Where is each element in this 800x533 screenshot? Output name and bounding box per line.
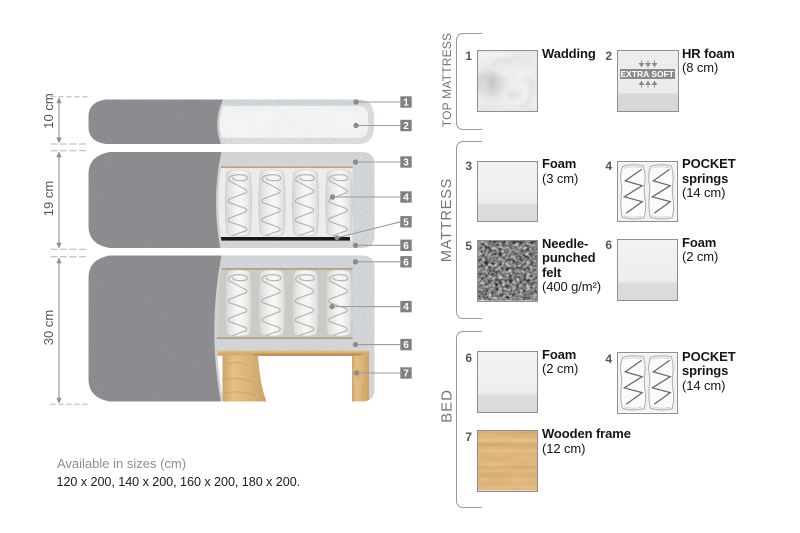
svg-text:30 cm: 30 cm <box>41 310 56 345</box>
svg-text:6: 6 <box>403 257 409 268</box>
svg-text:6: 6 <box>403 241 409 252</box>
svg-text:10 cm: 10 cm <box>41 93 56 128</box>
svg-text:19 cm: 19 cm <box>41 181 56 216</box>
svg-text:1: 1 <box>403 98 409 109</box>
svg-text:5: 5 <box>403 217 409 228</box>
svg-text:4: 4 <box>403 302 409 313</box>
svg-text:7: 7 <box>403 369 409 380</box>
svg-text:6: 6 <box>403 340 409 351</box>
svg-text:4: 4 <box>403 193 409 204</box>
svg-text:2: 2 <box>403 121 409 132</box>
svg-text:3: 3 <box>403 158 409 169</box>
